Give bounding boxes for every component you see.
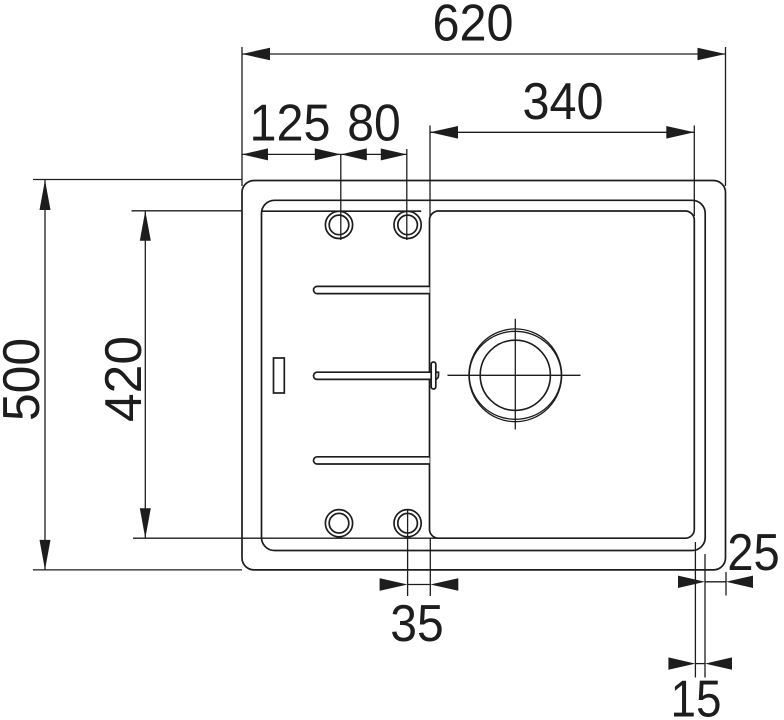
- svg-text:420: 420: [95, 336, 153, 422]
- svg-text:15: 15: [671, 671, 722, 720]
- svg-text:25: 25: [727, 524, 780, 582]
- svg-text:620: 620: [433, 0, 514, 53]
- svg-text:500: 500: [0, 338, 51, 421]
- svg-text:340: 340: [523, 73, 604, 131]
- svg-text:35: 35: [390, 595, 444, 653]
- svg-text:80: 80: [347, 95, 401, 153]
- svg-text:125: 125: [250, 95, 331, 153]
